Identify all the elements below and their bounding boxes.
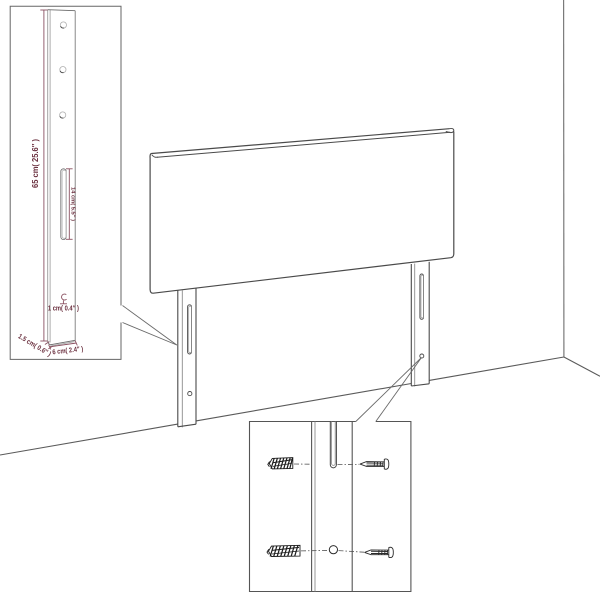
svg-text:65 cm( 25.6″ ): 65 cm( 25.6″ ) (30, 139, 40, 188)
svg-text:1 cm( 0.4″ ): 1 cm( 0.4″ ) (48, 305, 79, 312)
svg-text:14 cm( 5.5″ ): 14 cm( 5.5″ ) (69, 187, 75, 221)
